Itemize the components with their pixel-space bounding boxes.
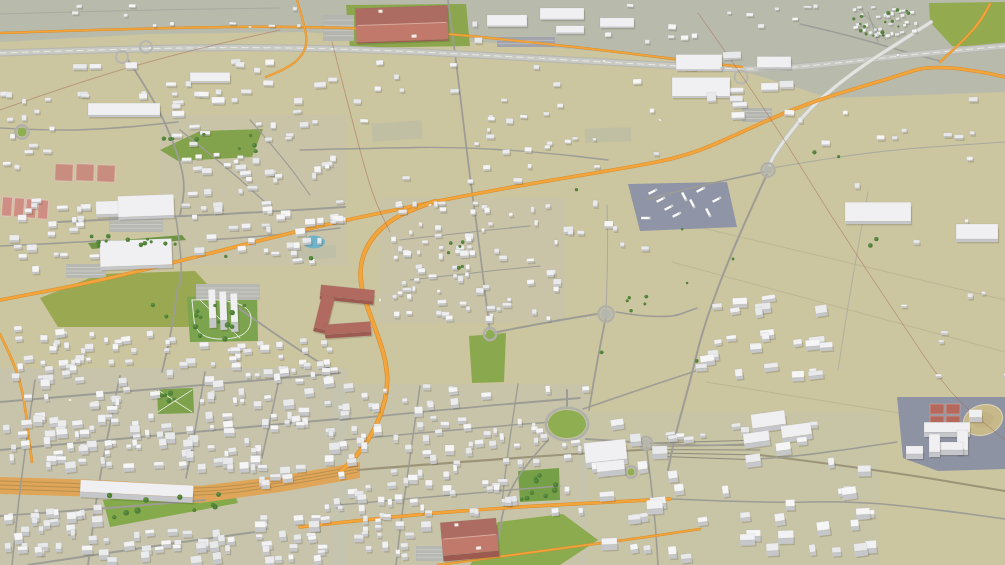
building <box>641 246 650 252</box>
warehouse-e1 <box>845 202 912 225</box>
building <box>207 392 215 403</box>
building <box>414 406 424 418</box>
building <box>92 516 105 529</box>
building <box>80 429 91 439</box>
car <box>330 48 333 50</box>
building <box>261 479 271 490</box>
building <box>633 79 643 87</box>
building <box>293 515 305 526</box>
building <box>732 102 748 110</box>
building <box>746 13 754 18</box>
building <box>194 247 206 257</box>
building <box>438 299 448 307</box>
building <box>202 168 214 177</box>
building <box>239 462 250 475</box>
urban-ground-tint <box>380 198 565 323</box>
campus-2 <box>929 434 941 458</box>
building <box>354 534 365 543</box>
building <box>421 521 433 533</box>
building <box>513 178 523 185</box>
building <box>18 215 28 224</box>
building <box>766 543 780 558</box>
car <box>148 47 151 49</box>
building <box>181 203 191 209</box>
building <box>262 419 270 430</box>
building <box>408 474 419 485</box>
building <box>89 254 100 261</box>
building <box>520 115 528 120</box>
roundabout <box>598 306 613 321</box>
building <box>441 422 451 430</box>
red-warehouse-south <box>440 518 500 563</box>
warehouse-n3 <box>757 57 792 71</box>
building <box>49 346 58 354</box>
warehouse-n2 <box>672 77 731 99</box>
city-3d-map[interactable] <box>0 0 1005 565</box>
building <box>628 514 642 526</box>
building <box>460 250 470 259</box>
building <box>228 225 239 232</box>
building <box>27 244 39 254</box>
building <box>263 80 274 88</box>
building <box>383 514 392 522</box>
building <box>33 415 44 427</box>
building <box>425 510 433 517</box>
building <box>305 218 317 228</box>
building <box>295 378 304 385</box>
building <box>488 117 496 123</box>
building <box>222 413 233 421</box>
building <box>260 345 271 354</box>
building <box>263 369 274 379</box>
building <box>494 484 501 494</box>
building <box>212 97 226 106</box>
building <box>804 6 813 10</box>
building <box>486 316 494 325</box>
building <box>740 534 757 547</box>
mall-1 <box>118 194 176 221</box>
building <box>21 419 33 430</box>
building <box>784 110 795 118</box>
building <box>224 428 236 438</box>
building <box>353 99 362 106</box>
building <box>292 258 304 265</box>
building <box>189 124 201 130</box>
building <box>779 80 795 90</box>
building <box>125 62 138 71</box>
warehouse-n1 <box>676 55 723 73</box>
building <box>18 254 28 261</box>
building <box>423 384 432 392</box>
building <box>107 557 118 565</box>
building <box>785 500 796 512</box>
building <box>506 118 515 126</box>
building <box>247 186 259 192</box>
building <box>668 24 677 32</box>
building <box>12 373 21 382</box>
building <box>646 499 664 516</box>
building <box>707 92 718 104</box>
building <box>198 464 208 475</box>
warehouse-nw2 <box>190 72 231 84</box>
building <box>241 89 253 95</box>
building <box>78 458 87 465</box>
warehouse-e2 <box>956 224 999 243</box>
building <box>808 370 825 382</box>
building <box>18 546 29 555</box>
car <box>248 26 251 28</box>
mall-1b <box>96 201 122 219</box>
building <box>417 422 425 432</box>
building <box>943 133 953 139</box>
building <box>505 497 513 508</box>
campus-6 <box>969 410 983 424</box>
building <box>270 474 282 482</box>
building <box>73 64 88 72</box>
building <box>56 428 69 440</box>
building <box>235 62 246 70</box>
building <box>47 231 56 238</box>
building <box>294 98 304 106</box>
building <box>877 135 886 142</box>
truck <box>641 217 651 220</box>
interchange-bldg2 <box>596 459 627 479</box>
building <box>154 462 165 471</box>
mall-2 <box>99 239 173 272</box>
red-factory <box>355 5 449 45</box>
building <box>167 370 175 380</box>
building <box>43 149 53 155</box>
building <box>299 122 309 130</box>
building <box>89 402 100 411</box>
building <box>750 343 764 354</box>
building <box>296 422 306 430</box>
building <box>954 135 964 141</box>
building <box>599 491 615 503</box>
building <box>107 406 119 415</box>
building <box>764 362 780 373</box>
building <box>186 451 195 463</box>
building <box>198 91 210 99</box>
building <box>182 530 193 539</box>
building <box>289 544 298 553</box>
warehouse-tc1 <box>487 15 528 29</box>
building <box>524 147 533 154</box>
car <box>68 399 71 401</box>
building <box>298 407 310 417</box>
building <box>695 363 708 373</box>
map-viewport <box>0 0 1005 565</box>
building <box>395 494 404 504</box>
car <box>658 119 661 121</box>
warehouse-tc2 <box>540 8 585 21</box>
building <box>81 93 91 99</box>
building <box>484 431 492 439</box>
building <box>258 465 269 473</box>
building <box>189 142 199 149</box>
building <box>445 445 455 457</box>
building <box>232 363 243 372</box>
building <box>166 82 177 88</box>
building <box>179 362 189 370</box>
warehouse-tc3 <box>600 18 635 30</box>
building <box>474 37 483 45</box>
building <box>9 235 20 244</box>
roundabout <box>546 408 588 440</box>
building <box>745 453 763 469</box>
building <box>82 545 94 556</box>
warehouse-tc4 <box>556 26 585 36</box>
building <box>4 514 14 525</box>
building <box>775 441 793 457</box>
building <box>577 230 585 237</box>
building <box>832 547 843 558</box>
building <box>450 89 460 96</box>
building <box>476 288 485 296</box>
building <box>360 119 369 125</box>
building <box>69 227 79 234</box>
building <box>206 234 218 243</box>
car <box>896 54 899 56</box>
building <box>499 256 508 263</box>
building <box>395 521 405 531</box>
car <box>720 67 723 69</box>
building <box>308 520 321 533</box>
building <box>296 464 307 473</box>
building <box>123 463 136 473</box>
building <box>182 157 193 163</box>
building <box>405 532 416 540</box>
building <box>325 455 335 467</box>
building <box>24 150 34 156</box>
building <box>265 59 275 67</box>
building <box>328 77 338 83</box>
building <box>40 379 51 391</box>
urban-ground-tint <box>580 412 880 565</box>
building <box>819 342 834 353</box>
building <box>29 143 40 149</box>
building <box>425 480 433 490</box>
building <box>652 446 669 461</box>
building <box>858 465 872 478</box>
building <box>502 303 512 310</box>
building <box>553 82 562 88</box>
building <box>199 342 210 351</box>
building <box>778 530 795 545</box>
campus-5 <box>906 446 924 460</box>
building <box>90 64 103 71</box>
courts-nw <box>55 164 116 183</box>
building <box>547 270 555 278</box>
building <box>93 504 103 515</box>
building <box>24 394 33 402</box>
building <box>731 112 746 121</box>
building <box>172 110 186 119</box>
building <box>486 134 496 141</box>
building <box>283 399 296 412</box>
building <box>188 191 199 198</box>
warehouse-nw <box>88 103 161 118</box>
building <box>601 538 618 552</box>
building <box>167 528 179 537</box>
building <box>255 521 267 533</box>
building <box>322 368 332 376</box>
building <box>404 250 413 259</box>
building <box>969 97 979 104</box>
building <box>200 131 211 137</box>
building <box>359 505 366 516</box>
building <box>18 431 29 439</box>
car <box>602 60 605 62</box>
building <box>723 51 743 61</box>
building <box>378 497 386 507</box>
car <box>538 56 541 58</box>
building <box>271 425 280 434</box>
building <box>402 288 412 294</box>
building <box>821 140 831 147</box>
car <box>379 298 381 301</box>
building <box>57 205 69 212</box>
building <box>40 335 49 344</box>
building <box>271 251 280 257</box>
building <box>761 83 779 93</box>
building <box>314 82 328 91</box>
building <box>172 104 182 111</box>
building <box>792 371 806 383</box>
building <box>60 253 69 259</box>
car <box>586 317 589 319</box>
